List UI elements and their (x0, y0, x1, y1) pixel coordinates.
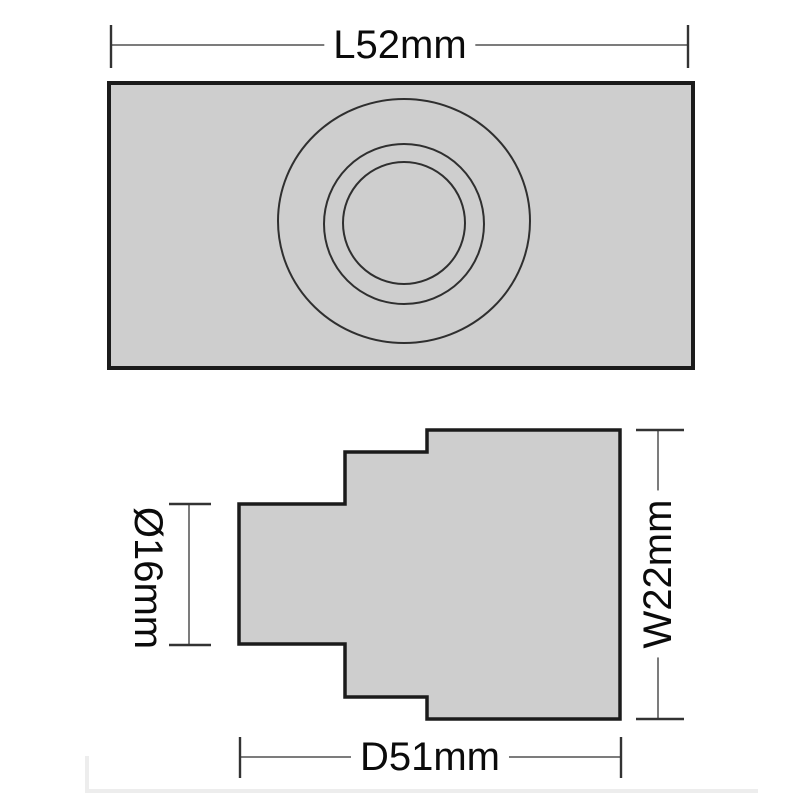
top-view-body (109, 83, 693, 368)
top-view (109, 83, 693, 368)
dimension-drawing (0, 0, 800, 800)
depth-dimension-label: D51mm (351, 736, 509, 778)
side-view-stepped-body (239, 430, 620, 719)
diameter-dimension-label: Ø16mm (127, 498, 169, 658)
technical-drawing-canvas: L52mm Ø16mm W22mm D51mm (0, 0, 800, 800)
dimension-diameter (167, 504, 211, 645)
width-dimension-label: W22mm (637, 491, 679, 658)
length-dimension-label: L52mm (324, 24, 475, 66)
